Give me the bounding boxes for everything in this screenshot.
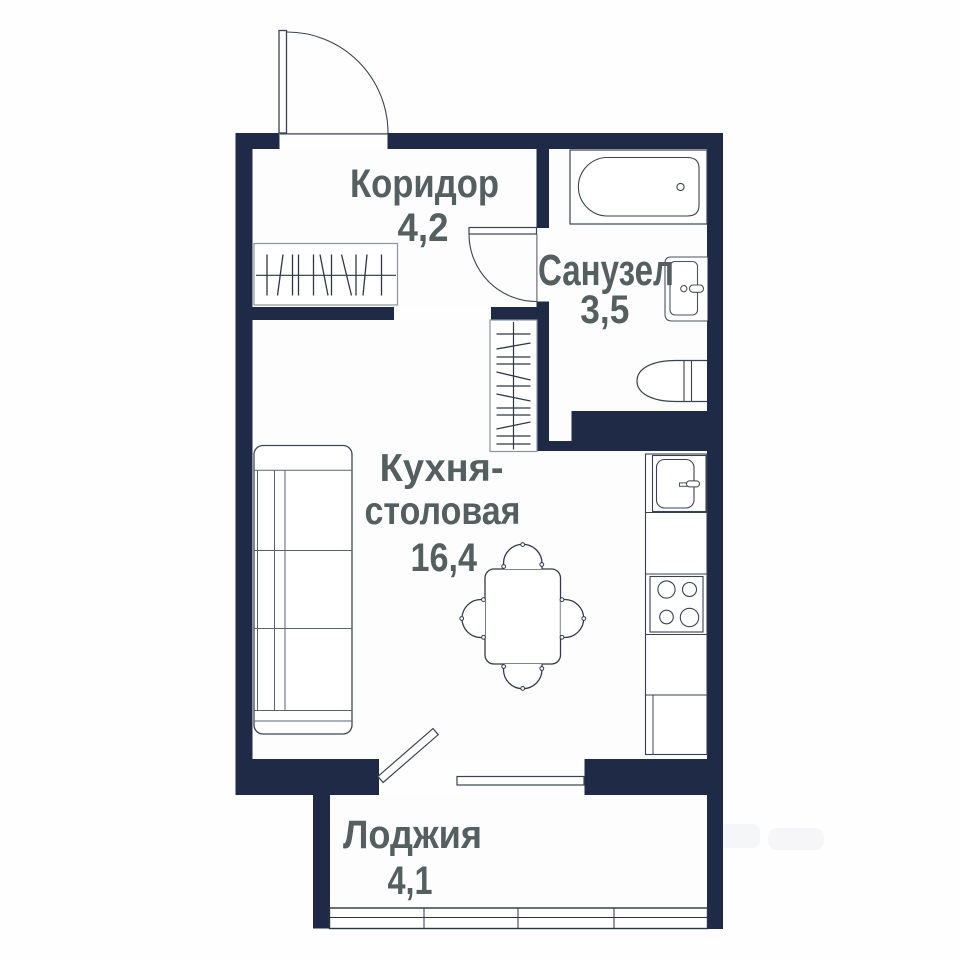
svg-text:Кухня-: Кухня- <box>380 447 504 490</box>
svg-text:столовая: столовая <box>365 490 521 533</box>
svg-text:16,4: 16,4 <box>411 536 478 580</box>
svg-text:3,5: 3,5 <box>580 288 629 332</box>
svg-text:Коридор: Коридор <box>350 162 499 206</box>
svg-text:4,2: 4,2 <box>398 206 449 250</box>
svg-text:Лоджия: Лоджия <box>343 813 482 857</box>
svg-text:4,1: 4,1 <box>388 859 433 903</box>
